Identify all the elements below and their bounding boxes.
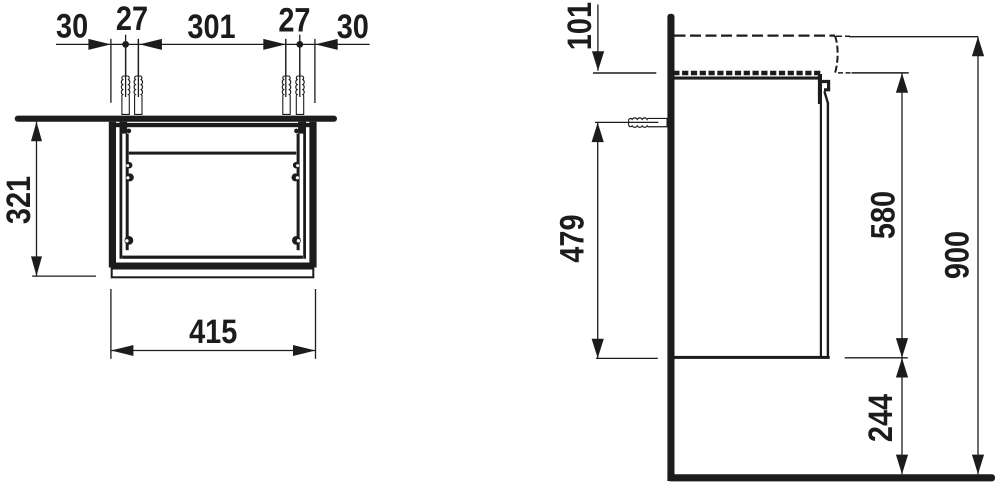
svg-text:321: 321: [0, 176, 38, 224]
svg-text:27: 27: [278, 2, 310, 40]
svg-text:101: 101: [561, 2, 599, 50]
svg-text:30: 30: [56, 7, 88, 45]
svg-text:27: 27: [116, 0, 148, 38]
svg-text:244: 244: [862, 394, 900, 442]
svg-text:900: 900: [939, 231, 977, 279]
svg-text:30: 30: [337, 8, 369, 46]
svg-text:479: 479: [554, 214, 592, 262]
svg-text:415: 415: [189, 313, 237, 351]
svg-text:580: 580: [865, 191, 903, 239]
svg-text:301: 301: [187, 8, 235, 46]
